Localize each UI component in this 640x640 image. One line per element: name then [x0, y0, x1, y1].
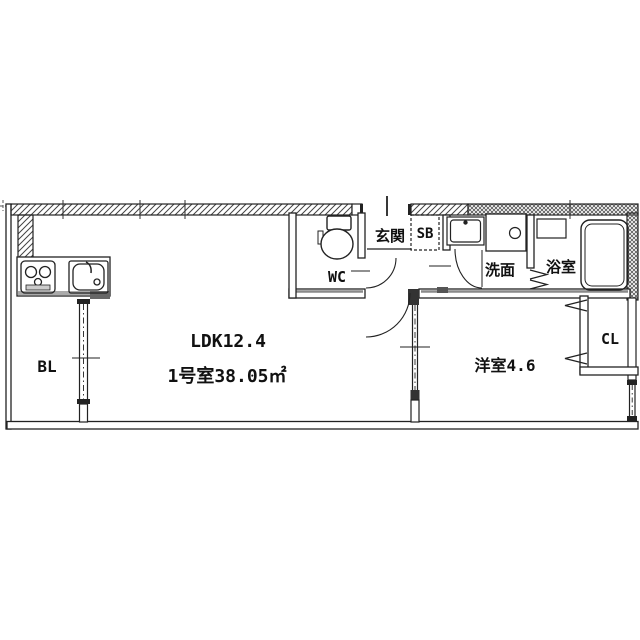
window-end-block [77, 299, 90, 304]
wc-label: WC [328, 268, 346, 286]
wall-below-window [80, 404, 88, 422]
bottom-rail-wall [7, 422, 638, 430]
wall-stub [437, 287, 448, 293]
wash-basin-icon [447, 217, 484, 245]
washroom-label: 洗面 [485, 261, 515, 279]
bathroom-label: 浴室 [546, 258, 576, 276]
window-end-block [627, 416, 637, 421]
bathroom-left-wall [527, 215, 534, 268]
washroom-fixtures [447, 214, 526, 251]
western-room-label: 洋室4.6 [475, 356, 536, 375]
closet-bottom-wall [580, 367, 638, 375]
wc-left-wall [289, 213, 296, 298]
window-end-block [77, 399, 90, 404]
left-wall-hatched [18, 215, 33, 259]
closet-label: CL [601, 330, 619, 348]
background [0, 0, 640, 640]
entrance-label: 玄関 [375, 227, 405, 245]
floor-plan-drawing: LDK12.4 1号室38.05㎡ BL WC 玄関 SB 洗面 浴室 洋室4.… [0, 0, 640, 640]
wall-lower [411, 400, 419, 422]
wc-right-wall [358, 213, 365, 258]
window-end-block [627, 380, 637, 385]
ldk-label: LDK12.4 [190, 331, 266, 352]
balcony-label: BL [37, 357, 56, 376]
floor-plan-canvas: LDK12.4 1号室38.05㎡ BL WC 玄関 SB 洗面 浴室 洋室4.… [0, 0, 640, 640]
wall-block [411, 390, 420, 400]
unit-label: 1号室38.05㎡ [167, 365, 286, 387]
kitchen [17, 257, 110, 299]
top-wall-hatched-mid [411, 204, 468, 215]
left-rail-wall [6, 204, 11, 429]
shoe-box-label: SB [417, 226, 434, 242]
top-wall-hatched-left [11, 204, 352, 215]
washing-machine-pan-icon [486, 214, 526, 251]
